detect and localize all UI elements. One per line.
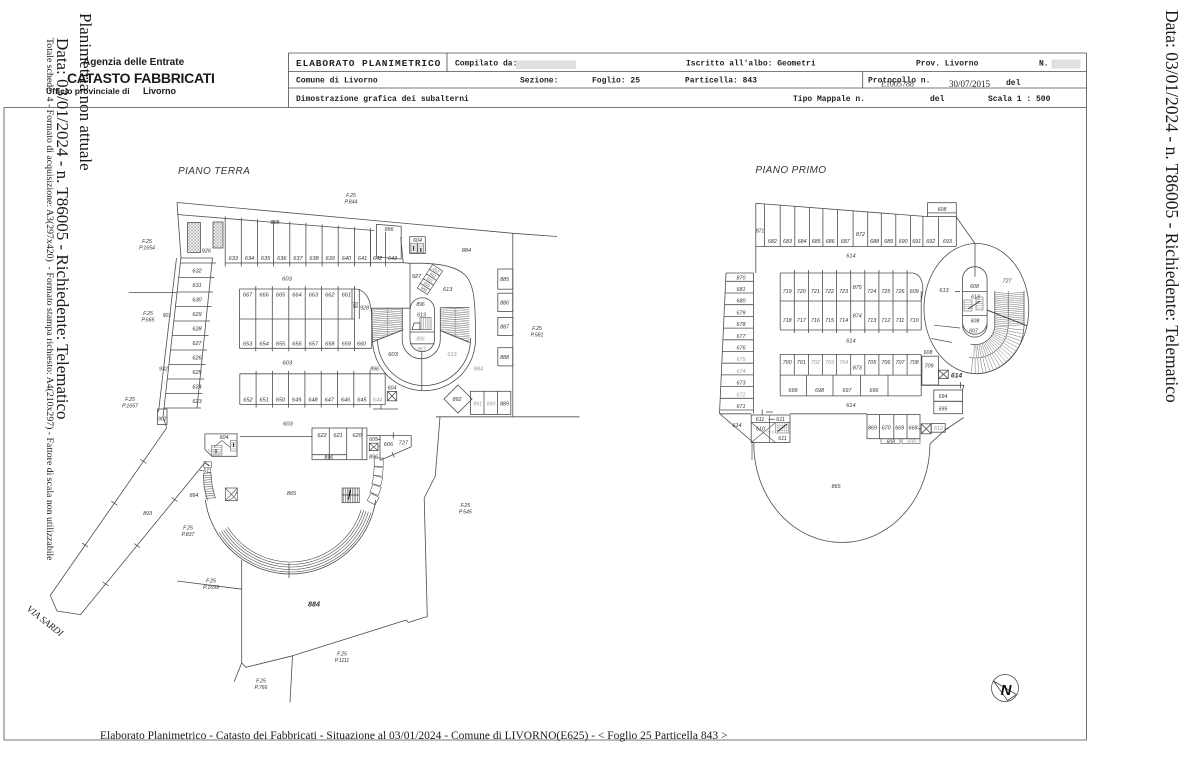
svg-text:F.25: F.25 bbox=[346, 193, 356, 199]
svg-text:684: 684 bbox=[798, 239, 807, 245]
svg-text:690: 690 bbox=[899, 239, 908, 245]
svg-text:677: 677 bbox=[737, 334, 747, 340]
svg-text:F.25: F.25 bbox=[532, 326, 542, 332]
svg-text:620: 620 bbox=[352, 433, 362, 439]
svg-text:648: 648 bbox=[308, 397, 318, 403]
svg-text:682: 682 bbox=[768, 239, 777, 245]
svg-text:706: 706 bbox=[881, 360, 890, 366]
svg-text:Prov. Livorno: Prov. Livorno bbox=[916, 60, 979, 69]
svg-text:611: 611 bbox=[778, 436, 787, 442]
svg-text:926: 926 bbox=[202, 249, 212, 255]
svg-text:686: 686 bbox=[826, 239, 835, 245]
svg-text:614: 614 bbox=[846, 403, 855, 409]
svg-text:640: 640 bbox=[342, 256, 352, 262]
svg-text:687: 687 bbox=[841, 239, 851, 245]
svg-text:713: 713 bbox=[867, 318, 876, 324]
svg-text:671: 671 bbox=[737, 404, 746, 410]
svg-text:675: 675 bbox=[737, 357, 747, 363]
svg-text:689: 689 bbox=[884, 239, 893, 245]
svg-text:660: 660 bbox=[357, 342, 367, 348]
svg-text:P.844: P.844 bbox=[345, 200, 358, 206]
svg-text:691: 691 bbox=[912, 239, 921, 245]
svg-text:603: 603 bbox=[283, 422, 293, 428]
svg-text:651: 651 bbox=[260, 397, 269, 403]
svg-text:887: 887 bbox=[500, 325, 510, 331]
svg-text:896: 896 bbox=[369, 454, 378, 460]
svg-text:722: 722 bbox=[825, 289, 834, 295]
svg-text:725: 725 bbox=[881, 289, 891, 295]
svg-text:604: 604 bbox=[388, 386, 397, 392]
svg-text:P.545: P.545 bbox=[459, 510, 472, 516]
svg-text:609: 609 bbox=[910, 289, 919, 295]
svg-text:707: 707 bbox=[896, 360, 906, 366]
svg-text:613: 613 bbox=[447, 352, 457, 358]
svg-text:621: 621 bbox=[333, 433, 342, 439]
svg-text:703: 703 bbox=[825, 360, 834, 366]
svg-text:F.25: F.25 bbox=[183, 526, 193, 532]
svg-text:699: 699 bbox=[789, 388, 798, 394]
svg-text:681: 681 bbox=[737, 287, 746, 293]
svg-text:F.25: F.25 bbox=[125, 397, 135, 403]
svg-text:715: 715 bbox=[825, 318, 835, 324]
svg-text:629: 629 bbox=[192, 312, 201, 318]
svg-text:654: 654 bbox=[259, 342, 268, 348]
svg-text:666: 666 bbox=[259, 293, 269, 299]
svg-text:656: 656 bbox=[292, 342, 302, 348]
svg-text:874: 874 bbox=[853, 314, 862, 320]
svg-text:Iscritto all'albo: Geometri: Iscritto all'albo: Geometri bbox=[686, 60, 816, 69]
svg-text:688: 688 bbox=[870, 239, 879, 245]
svg-text:625: 625 bbox=[192, 370, 202, 376]
svg-text:608: 608 bbox=[924, 350, 933, 356]
svg-text:607: 607 bbox=[969, 329, 979, 335]
svg-text:726: 726 bbox=[896, 289, 905, 295]
svg-text:Sezione:: Sezione: bbox=[520, 77, 558, 86]
svg-text:875: 875 bbox=[853, 285, 863, 291]
svg-text:PIANO PRIMO: PIANO PRIMO bbox=[755, 165, 826, 176]
svg-text:865: 865 bbox=[287, 491, 297, 497]
svg-text:VIA SARDI: VIA SARDI bbox=[24, 604, 65, 639]
svg-text:649: 649 bbox=[292, 397, 301, 403]
svg-text:614: 614 bbox=[732, 423, 741, 429]
svg-text:638: 638 bbox=[309, 256, 319, 262]
svg-text:928: 928 bbox=[360, 306, 369, 312]
svg-text:611: 611 bbox=[756, 417, 765, 423]
svg-text:723: 723 bbox=[839, 289, 848, 295]
svg-text:650: 650 bbox=[276, 397, 286, 403]
svg-text:724: 724 bbox=[867, 289, 876, 295]
svg-text:646: 646 bbox=[341, 397, 351, 403]
svg-text:893: 893 bbox=[143, 511, 152, 517]
svg-text:667: 667 bbox=[243, 293, 253, 299]
svg-text:896: 896 bbox=[324, 455, 333, 461]
svg-text:603: 603 bbox=[388, 352, 398, 358]
svg-text:F.25: F.25 bbox=[337, 652, 347, 658]
svg-text:642: 642 bbox=[373, 256, 383, 262]
svg-text:673: 673 bbox=[737, 381, 746, 387]
svg-text:Scala 1 : 500: Scala 1 : 500 bbox=[988, 95, 1051, 104]
svg-text:694: 694 bbox=[939, 394, 948, 400]
svg-text:896: 896 bbox=[385, 227, 394, 233]
svg-text:664: 664 bbox=[292, 293, 301, 299]
svg-text:704: 704 bbox=[839, 360, 848, 366]
svg-text:701: 701 bbox=[797, 360, 806, 366]
svg-text:616: 616 bbox=[767, 430, 774, 435]
svg-text:884: 884 bbox=[462, 248, 471, 254]
svg-text:659: 659 bbox=[342, 342, 351, 348]
svg-text:720: 720 bbox=[797, 289, 806, 295]
svg-text:639: 639 bbox=[326, 256, 335, 262]
svg-text:Tipo Mappale n.: Tipo Mappale n. bbox=[793, 95, 865, 104]
svg-text:896: 896 bbox=[416, 302, 425, 308]
svg-text:635: 635 bbox=[261, 256, 271, 262]
svg-text:885: 885 bbox=[500, 277, 509, 283]
svg-text:613: 613 bbox=[939, 288, 949, 294]
svg-text:693: 693 bbox=[943, 239, 952, 245]
svg-text:676: 676 bbox=[737, 346, 746, 352]
svg-text:603: 603 bbox=[282, 277, 292, 283]
svg-text:865: 865 bbox=[832, 484, 842, 490]
svg-text:637: 637 bbox=[293, 256, 303, 262]
svg-text:636: 636 bbox=[277, 256, 287, 262]
svg-text:678: 678 bbox=[737, 322, 746, 328]
svg-text:30/07/2015: 30/07/2015 bbox=[949, 79, 991, 89]
svg-text:623: 623 bbox=[192, 399, 202, 405]
svg-text:685: 685 bbox=[812, 239, 822, 245]
svg-text:658: 658 bbox=[325, 342, 335, 348]
svg-text:608: 608 bbox=[970, 284, 979, 290]
svg-text:705: 705 bbox=[867, 360, 877, 366]
svg-text:696: 696 bbox=[870, 388, 879, 394]
svg-text:669: 669 bbox=[895, 426, 904, 432]
svg-text:603: 603 bbox=[282, 361, 292, 367]
svg-text:653: 653 bbox=[243, 342, 253, 348]
svg-text:674: 674 bbox=[737, 369, 746, 375]
svg-text:608: 608 bbox=[887, 440, 896, 446]
svg-text:Comune di Livorno: Comune di Livorno bbox=[296, 77, 378, 86]
svg-text:895: 895 bbox=[270, 220, 280, 226]
svg-text:F.25: F.25 bbox=[142, 239, 152, 245]
svg-text:714: 714 bbox=[839, 318, 848, 324]
svg-text:683: 683 bbox=[783, 239, 792, 245]
svg-text:633: 633 bbox=[229, 256, 239, 262]
svg-text:631: 631 bbox=[192, 283, 201, 289]
svg-text:721: 721 bbox=[811, 289, 820, 295]
svg-text:870: 870 bbox=[737, 276, 746, 282]
svg-text:614: 614 bbox=[951, 373, 963, 380]
svg-text:665: 665 bbox=[276, 293, 286, 299]
svg-text:N: N bbox=[1001, 682, 1013, 699]
svg-text:P.665: P.665 bbox=[142, 318, 155, 324]
svg-text:647: 647 bbox=[325, 397, 335, 403]
svg-text:627: 627 bbox=[192, 341, 202, 347]
svg-text:663: 663 bbox=[309, 293, 319, 299]
svg-text:617: 617 bbox=[214, 451, 221, 456]
svg-text:727: 727 bbox=[1003, 279, 1013, 285]
svg-text:P.1699: P.1699 bbox=[203, 585, 219, 591]
svg-text:630: 630 bbox=[192, 298, 202, 304]
svg-text:P.581: P.581 bbox=[531, 333, 544, 339]
svg-text:927: 927 bbox=[412, 274, 422, 280]
svg-text:652: 652 bbox=[243, 397, 253, 403]
svg-text:604: 604 bbox=[220, 435, 229, 441]
svg-text:692: 692 bbox=[926, 239, 935, 245]
svg-text:700: 700 bbox=[783, 360, 792, 366]
svg-text:PIANO TERRA: PIANO TERRA bbox=[178, 166, 250, 177]
svg-text:605: 605 bbox=[369, 437, 378, 443]
svg-text:645: 645 bbox=[357, 397, 367, 403]
svg-text:727: 727 bbox=[399, 440, 409, 446]
svg-text:P.1111: P.1111 bbox=[335, 658, 350, 664]
svg-text:626: 626 bbox=[192, 356, 202, 362]
svg-text:884: 884 bbox=[474, 367, 483, 373]
svg-text:679: 679 bbox=[737, 310, 746, 316]
svg-text:624: 624 bbox=[192, 385, 201, 391]
svg-text:F.25: F.25 bbox=[206, 579, 216, 585]
svg-text:869: 869 bbox=[868, 426, 877, 432]
svg-text:613: 613 bbox=[443, 287, 453, 293]
svg-text:710: 710 bbox=[910, 318, 919, 324]
svg-text:614: 614 bbox=[846, 339, 855, 345]
svg-text:del: del bbox=[930, 95, 945, 104]
svg-text:884: 884 bbox=[308, 600, 320, 609]
svg-text:Compilato da:: Compilato da: bbox=[455, 60, 517, 69]
svg-text:Particella: 843: Particella: 843 bbox=[685, 77, 757, 86]
svg-text:872: 872 bbox=[856, 232, 865, 238]
svg-text:915: 915 bbox=[355, 301, 359, 308]
svg-text:702: 702 bbox=[811, 360, 820, 366]
svg-text:655: 655 bbox=[276, 342, 286, 348]
svg-text:891: 891 bbox=[473, 402, 482, 408]
svg-text:608: 608 bbox=[971, 319, 980, 325]
svg-text:F.25: F.25 bbox=[460, 503, 470, 509]
svg-text:632: 632 bbox=[192, 269, 202, 275]
svg-text:P.837: P.837 bbox=[182, 532, 196, 538]
svg-text:622: 622 bbox=[317, 433, 327, 439]
svg-text:611: 611 bbox=[776, 417, 785, 423]
svg-text:680: 680 bbox=[737, 299, 746, 305]
svg-text:606: 606 bbox=[384, 442, 394, 448]
svg-text:698: 698 bbox=[815, 388, 824, 394]
svg-text:894: 894 bbox=[190, 493, 199, 499]
svg-text:P.766: P.766 bbox=[255, 685, 268, 691]
svg-text:890: 890 bbox=[487, 402, 496, 408]
svg-text:889: 889 bbox=[500, 402, 509, 408]
svg-text:N.: N. bbox=[1039, 60, 1049, 69]
svg-text:F.25: F.25 bbox=[143, 311, 153, 317]
svg-text:614: 614 bbox=[846, 254, 855, 260]
svg-text:634: 634 bbox=[245, 256, 254, 262]
svg-text:P.1657: P.1657 bbox=[122, 404, 139, 410]
svg-text:873: 873 bbox=[853, 366, 862, 372]
svg-text:717: 717 bbox=[797, 318, 807, 324]
svg-text:708: 708 bbox=[910, 360, 919, 366]
svg-text:613: 613 bbox=[971, 295, 980, 301]
svg-text:697: 697 bbox=[843, 388, 853, 394]
svg-text:892: 892 bbox=[453, 397, 462, 403]
svg-text:643: 643 bbox=[388, 256, 398, 262]
svg-text:672: 672 bbox=[737, 392, 746, 398]
svg-text:del: del bbox=[1006, 79, 1021, 88]
svg-text:644: 644 bbox=[373, 397, 382, 403]
svg-text:886: 886 bbox=[500, 300, 509, 306]
svg-text:F.25: F.25 bbox=[256, 679, 266, 685]
svg-text:657: 657 bbox=[309, 342, 319, 348]
svg-text:662: 662 bbox=[325, 293, 335, 299]
svg-text:641: 641 bbox=[358, 256, 367, 262]
svg-text:718: 718 bbox=[783, 318, 792, 324]
svg-text:896: 896 bbox=[370, 367, 379, 373]
svg-text:712: 712 bbox=[881, 318, 890, 324]
svg-text:695: 695 bbox=[939, 407, 948, 413]
svg-text:Dimostrazione grafica dei suba: Dimostrazione grafica dei subalterni bbox=[296, 95, 469, 104]
svg-text:628: 628 bbox=[192, 327, 202, 333]
svg-text:888: 888 bbox=[500, 355, 509, 361]
svg-text:P.1654: P.1654 bbox=[139, 246, 155, 252]
svg-text:661: 661 bbox=[342, 293, 351, 299]
svg-text:Foglio: 25: Foglio: 25 bbox=[592, 77, 640, 86]
svg-text:668: 668 bbox=[909, 426, 918, 432]
svg-text:719: 719 bbox=[783, 289, 792, 295]
svg-text:670: 670 bbox=[882, 426, 891, 432]
svg-text:902: 902 bbox=[158, 417, 167, 423]
svg-text:608: 608 bbox=[938, 207, 947, 213]
svg-text:709: 709 bbox=[925, 364, 934, 370]
svg-text:609: 609 bbox=[907, 440, 916, 446]
svg-text:612: 612 bbox=[934, 426, 943, 432]
svg-text:716: 716 bbox=[811, 318, 820, 324]
svg-text:711: 711 bbox=[896, 318, 905, 324]
svg-text:ELABORATO PLANIMETRICO: ELABORATO PLANIMETRICO bbox=[296, 58, 441, 69]
svg-text:E1005788: E1005788 bbox=[881, 80, 914, 89]
svg-text:896: 896 bbox=[416, 336, 425, 342]
svg-text:871: 871 bbox=[756, 229, 765, 235]
